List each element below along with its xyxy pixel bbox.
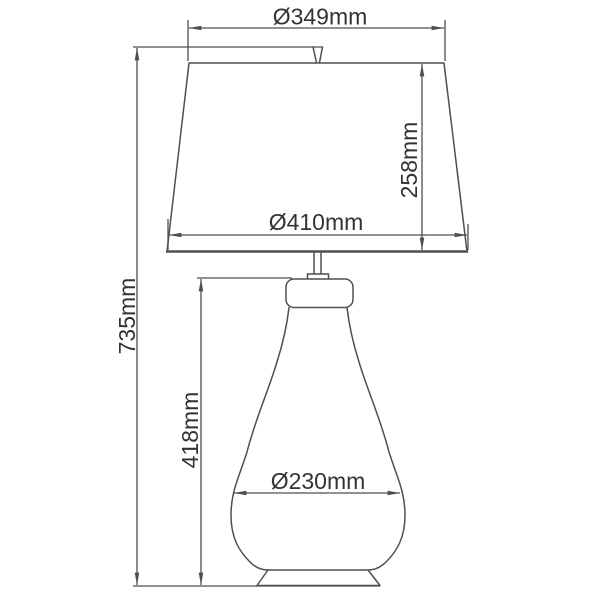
dimension-label-body-height: 418mm [177,392,203,469]
dim-shade-top-diameter: Ø349mm [188,4,445,62]
lamp-dimension-drawing: Ø349mm 258mm Ø410mm 735mm [0,0,600,600]
dim-total-height: 735mm [114,47,380,586]
dim-body-diameter: Ø230mm [234,468,400,494]
dimension-label-shade-height: 258mm [396,122,422,199]
dimension-label-shade-bottom-diameter: Ø410mm [269,209,364,235]
dimension-label-body-diameter: Ø230mm [271,468,366,494]
dim-shade-bottom-diameter: Ø410mm [168,209,468,250]
neck-cap [286,279,353,308]
lamp-base [257,570,380,586]
dimension-label-total-height: 735mm [114,278,140,355]
finial-notch [313,47,323,63]
diagram-canvas: Ø349mm 258mm Ø410mm 735mm [0,0,600,600]
lamp-outline [166,47,468,586]
dim-shade-height: 258mm [396,64,422,250]
dimension-label-shade-top-diameter: Ø349mm [273,4,368,30]
vase-body [231,308,405,571]
